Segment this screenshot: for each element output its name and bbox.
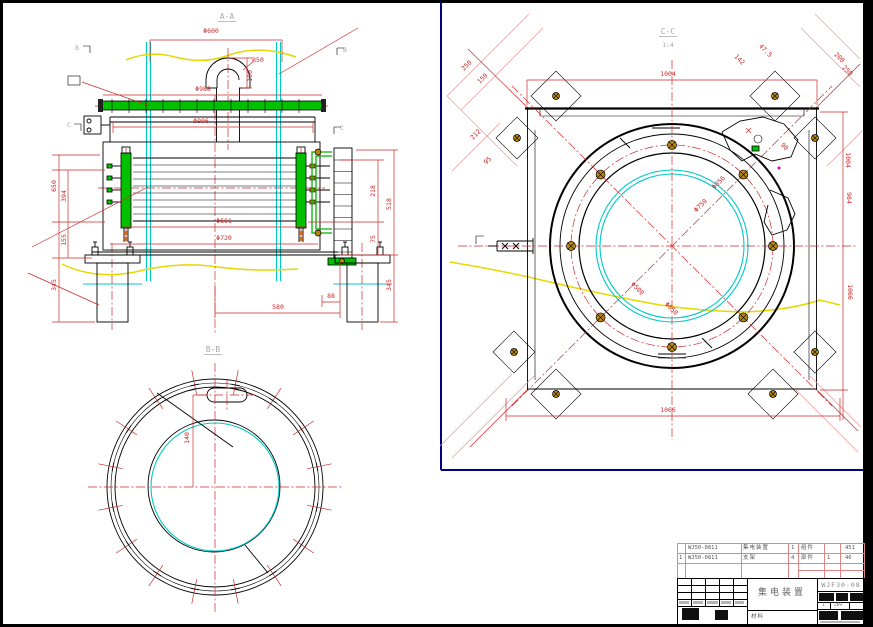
tb-drawing-number: WJF30-08 bbox=[818, 581, 864, 589]
part-row-qty: 1 bbox=[791, 544, 798, 552]
section-label-cc: C-C bbox=[661, 27, 676, 36]
dim-518: 518 bbox=[385, 198, 393, 210]
cut-marker-b-right: B bbox=[343, 46, 347, 54]
break-line-top bbox=[126, 50, 296, 60]
dimensions-aa: Φ600 R50 100 Φ988 Φ906 Φ501 Φ720 580 88 bbox=[50, 27, 398, 322]
tb-sheet-code: 209 bbox=[834, 603, 842, 608]
part-row-code: WJ50-0811 bbox=[688, 554, 740, 562]
dim-d500: Φ500 bbox=[629, 280, 646, 297]
dim-345-right: 345 bbox=[385, 279, 393, 291]
dim-1066-right: 1066 bbox=[846, 284, 854, 300]
dim-tr-142: 142 bbox=[732, 53, 746, 67]
dimension-140: 140 bbox=[183, 395, 207, 487]
dim-1004-tr: 1004 bbox=[844, 152, 852, 168]
corner-dim-lines bbox=[440, 14, 862, 458]
tb-sheet-no: 1 bbox=[822, 603, 825, 608]
view-section-bb: B-B 140 bbox=[88, 345, 343, 612]
tb-label-smudge bbox=[693, 601, 703, 604]
support-legs bbox=[85, 242, 390, 322]
tube-bundle bbox=[133, 158, 298, 221]
tb-part-title: 集电装置 bbox=[749, 585, 815, 598]
cad-drawing: A-A B B C C bbox=[0, 0, 873, 627]
tube-sheets bbox=[107, 147, 330, 242]
dim-d650: Φ650 bbox=[663, 300, 680, 317]
cut-marker-c-left: C bbox=[67, 121, 71, 129]
viewport-border bbox=[441, 2, 863, 470]
tb-label-smudge bbox=[721, 601, 731, 604]
dim-tr-90: 90 bbox=[779, 141, 790, 152]
dim-984-right: 984 bbox=[845, 192, 853, 204]
centerlines-cc bbox=[458, 60, 858, 440]
cut-marker-b-left: B bbox=[75, 44, 79, 52]
title-block: WJ50-0811 集电装置 1 组件 451 1 WJ50-0811 支架 4… bbox=[677, 543, 865, 625]
tb-label-smudge bbox=[707, 601, 718, 604]
dim-d501: Φ501 bbox=[216, 217, 232, 225]
tb-redacted bbox=[841, 611, 863, 620]
dim-88: 88 bbox=[327, 292, 335, 300]
dim-d906: Φ906 bbox=[193, 117, 209, 125]
part-row-name: 支架 bbox=[743, 554, 787, 562]
tb-redacted bbox=[715, 610, 728, 620]
right-frame bbox=[312, 149, 332, 236]
centerlines bbox=[95, 48, 362, 335]
dim-tl-95: 95 bbox=[482, 155, 493, 166]
dim-d856: Φ856 bbox=[710, 174, 727, 191]
dim-100: 100 bbox=[246, 70, 254, 82]
dim-394: 394 bbox=[60, 190, 68, 202]
tb-redacted bbox=[850, 593, 863, 601]
dim-tr-200: 200 bbox=[832, 51, 846, 65]
tb-redacted bbox=[819, 611, 838, 620]
tb-redacted bbox=[836, 593, 848, 601]
part-row-weight: 451 bbox=[845, 544, 863, 552]
dim-r50: R50 bbox=[252, 56, 264, 64]
section-scale-cc: 1:4 bbox=[662, 41, 674, 49]
dim-d988: Φ988 bbox=[195, 85, 211, 93]
dim-d600: Φ600 bbox=[203, 27, 219, 35]
tb-company-smudge bbox=[820, 621, 860, 623]
dim-tl-250: 250 bbox=[460, 59, 474, 73]
centerlines-bb bbox=[88, 363, 343, 612]
part-row-qty: 4 bbox=[791, 554, 798, 562]
tb-material-label: 材料 bbox=[751, 613, 781, 621]
dim-345-left: 345 bbox=[50, 279, 58, 291]
left-bracket bbox=[84, 116, 110, 134]
section-label-aa: A-A bbox=[220, 12, 235, 21]
part-row-weight: 46 bbox=[845, 554, 863, 562]
tb-label-smudge bbox=[679, 601, 689, 604]
dim-1004-top: 1004 bbox=[660, 70, 676, 78]
dim-d720: Φ720 bbox=[216, 234, 232, 242]
tb-label-smudge bbox=[735, 601, 744, 604]
upper-drum bbox=[110, 117, 315, 142]
dim-155: 155 bbox=[60, 234, 68, 246]
view-section-aa: A-A B B C C bbox=[28, 12, 398, 335]
dim-650: 650 bbox=[50, 180, 58, 192]
dim-218: 218 bbox=[369, 185, 377, 197]
tb-redacted bbox=[819, 593, 834, 601]
dim-tr-47-5: 47.5 bbox=[757, 42, 774, 59]
tb-redacted bbox=[682, 608, 699, 620]
part-row-unit: 组件 bbox=[801, 544, 823, 552]
part-row-extra: 1 bbox=[827, 554, 839, 562]
part-row-code: WJ50-0811 bbox=[688, 544, 740, 552]
dim-75: 75 bbox=[369, 235, 377, 243]
leaders bbox=[28, 28, 358, 305]
section-label-bb: B-B bbox=[206, 345, 221, 354]
cad-sheet: A-A B B C C bbox=[0, 0, 873, 627]
part-row-name: 集电装置 bbox=[743, 544, 787, 552]
part-row-seq: 1 bbox=[679, 554, 685, 562]
view-section-cc: C-C 1:4 bbox=[440, 14, 862, 458]
dim-tr-250: 250 bbox=[840, 64, 854, 78]
dim-140: 140 bbox=[183, 432, 191, 444]
dim-580: 580 bbox=[272, 303, 284, 311]
left-bolt-detail bbox=[476, 236, 533, 254]
part-row-unit: 部件 bbox=[801, 554, 823, 562]
cut-marker-c-right: C bbox=[340, 124, 344, 132]
dim-1066-bottom: 1066 bbox=[660, 406, 676, 414]
top-flange bbox=[98, 99, 326, 113]
